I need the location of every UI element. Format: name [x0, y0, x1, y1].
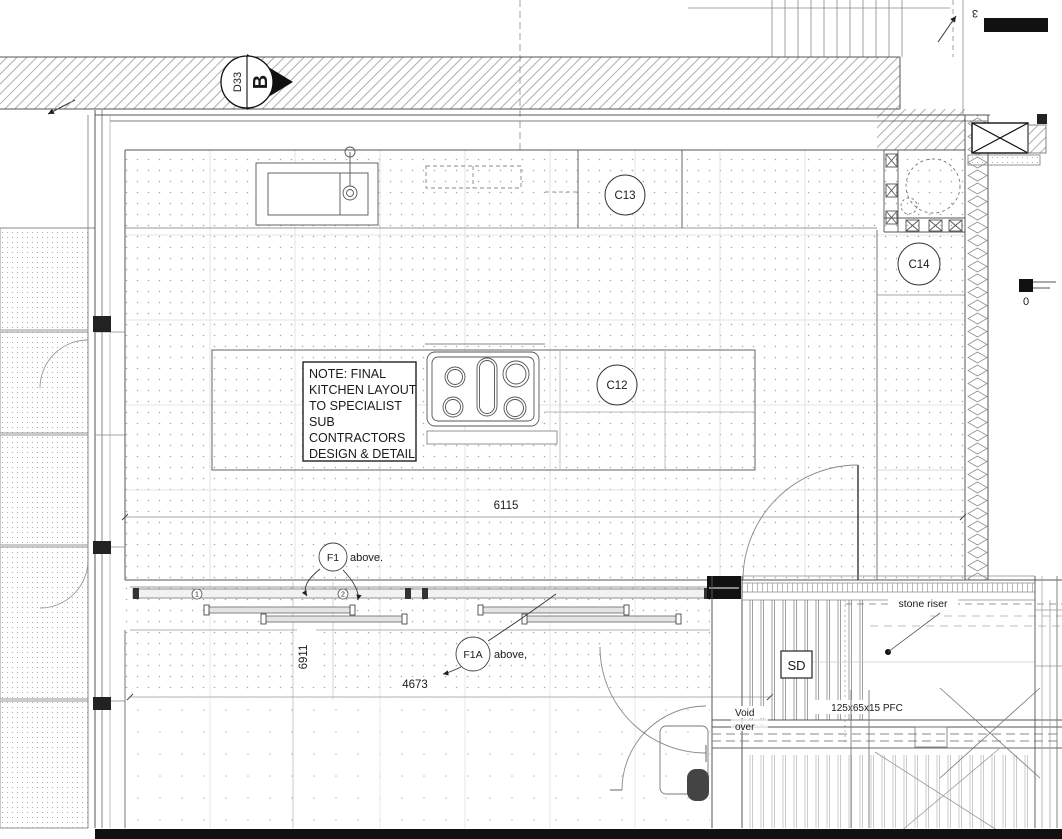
- lower-deck-joists: [745, 755, 1035, 828]
- callout-c14: C14: [898, 243, 940, 285]
- floor-plan-canvas: 3: [0, 0, 1062, 839]
- svg-text:2: 2: [341, 592, 345, 599]
- right-wall-insulation: [965, 115, 988, 580]
- svg-text:125x65x15 PFC: 125x65x15 PFC: [831, 703, 903, 714]
- svg-text:SUB: SUB: [309, 415, 335, 429]
- svg-text:1: 1: [195, 592, 199, 599]
- bottom-wall-bar: [95, 829, 1062, 839]
- svg-text:stone riser: stone riser: [898, 598, 948, 610]
- svg-text:Void: Void: [735, 708, 754, 719]
- svg-text:KITCHEN LAYOUT: KITCHEN LAYOUT: [309, 383, 417, 397]
- svg-text:C14: C14: [908, 259, 930, 271]
- svg-text:F1: F1: [327, 552, 339, 564]
- corner-detail-mark: [1037, 114, 1047, 124]
- sink-unit: [256, 163, 378, 225]
- svg-text:6911: 6911: [298, 645, 310, 670]
- island-drawer-strip: [427, 431, 557, 444]
- callout-c13: C13: [605, 175, 645, 215]
- hob: [427, 352, 539, 426]
- dimension-6911: 6911: [297, 629, 316, 685]
- svg-text:SD: SD: [787, 658, 805, 673]
- svg-text:over: over: [735, 722, 755, 733]
- svg-text:B: B: [250, 75, 272, 89]
- svg-text:C12: C12: [606, 380, 627, 392]
- svg-text:6115: 6115: [494, 500, 519, 512]
- kitchen-floor: [125, 150, 965, 580]
- floor-plan-drawing: 3: [0, 0, 1062, 839]
- svg-text:above.: above.: [350, 552, 383, 564]
- svg-text:4673: 4673: [402, 679, 428, 691]
- callout-c12: C12: [597, 365, 637, 405]
- fixture-dark: [687, 769, 709, 801]
- svg-text:F1A: F1A: [463, 649, 482, 661]
- kitchen-note-box: NOTE: FINAL KITCHEN LAYOUT TO SPECIALIST…: [303, 362, 417, 461]
- grid-bubble-label: 3: [972, 7, 978, 19]
- svg-text:above,: above,: [494, 649, 527, 661]
- svg-text:CONTRACTORS: CONTRACTORS: [309, 431, 405, 445]
- svg-text:NOTE: FINAL: NOTE: FINAL: [309, 367, 386, 381]
- svg-text:TO SPECIALIST: TO SPECIALIST: [309, 399, 402, 413]
- svg-text:C13: C13: [614, 190, 635, 202]
- svg-text:DESIGN & DETAIL: DESIGN & DETAIL: [309, 447, 415, 461]
- svg-text:D33: D33: [232, 72, 244, 92]
- svg-text:0: 0: [1023, 296, 1029, 308]
- titleblock-black-bar: [984, 18, 1048, 32]
